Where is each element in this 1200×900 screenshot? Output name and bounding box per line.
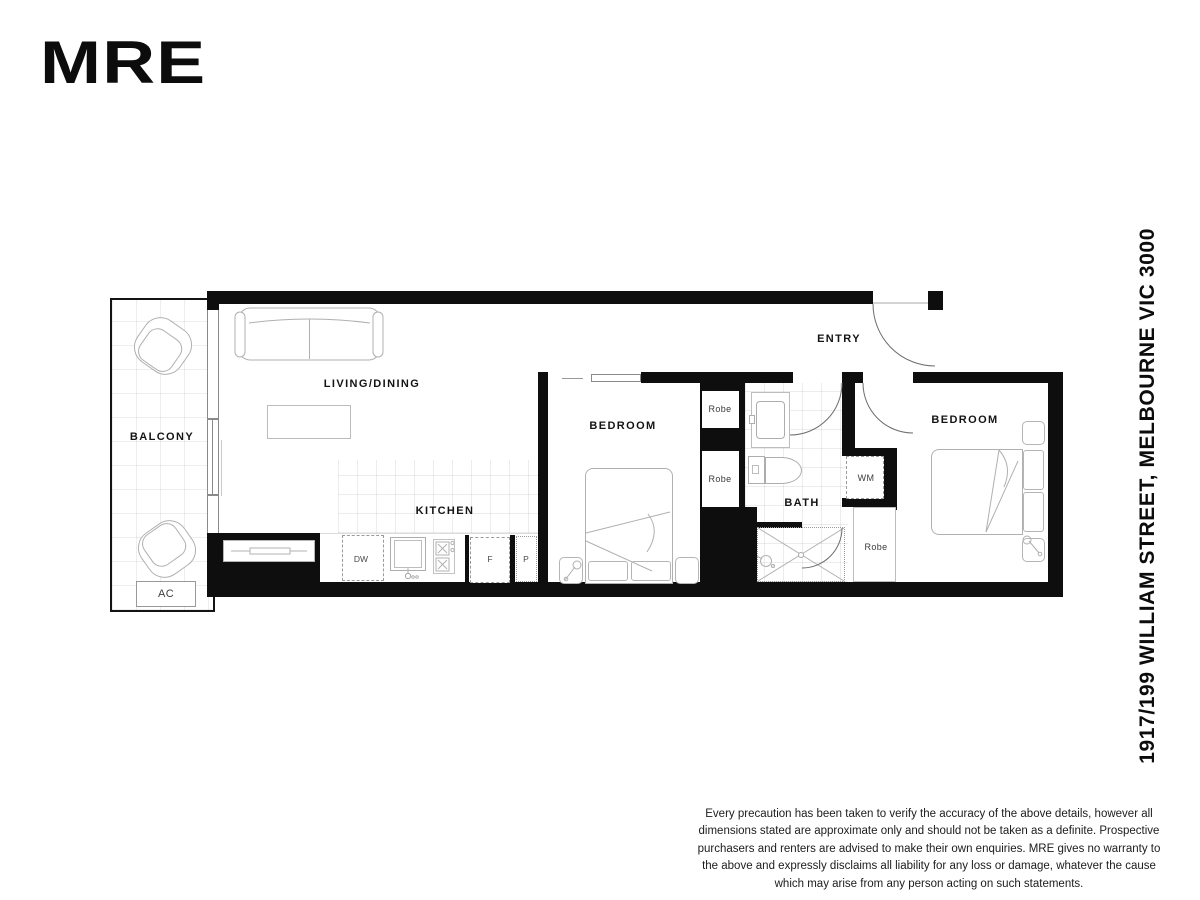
wall-top-end-cap bbox=[928, 291, 943, 310]
wall-entry-bath bbox=[842, 372, 855, 455]
curtain-line bbox=[221, 440, 222, 496]
room-label-bedroom-2: BEDROOM bbox=[931, 414, 998, 426]
fixture-label-robe-2: Robe bbox=[708, 474, 731, 484]
fixture-label-ac: AC bbox=[158, 588, 174, 600]
wall-right bbox=[1048, 372, 1063, 597]
kitchen-floor-grid bbox=[338, 460, 538, 533]
fixture-label-robe-1: Robe bbox=[708, 404, 731, 414]
bed1-nightstand-left bbox=[559, 557, 583, 584]
wall-top bbox=[207, 291, 873, 304]
wall-bedroom1-top bbox=[641, 372, 793, 383]
room-label-balcony: BALCONY bbox=[130, 431, 194, 443]
sofa-icon bbox=[235, 308, 383, 360]
fixture-label-wm: WM bbox=[858, 473, 875, 483]
fixture-label-pantry: P bbox=[523, 554, 529, 564]
bed2-icon bbox=[931, 449, 1023, 535]
bed2-pillow-top bbox=[1023, 450, 1044, 490]
room-label-bath: BATH bbox=[784, 497, 819, 509]
wall-kitchen-divider-1 bbox=[465, 535, 469, 582]
slider-track-line bbox=[562, 378, 583, 379]
bench-edge bbox=[320, 533, 538, 534]
wall-wm-bottom bbox=[842, 498, 897, 507]
floorplan: BALCONY LIVING/DINING KITCHEN BEDROOM BE… bbox=[0, 0, 1200, 900]
wall-top-left-cap bbox=[207, 291, 219, 310]
bed1-nightstand-right bbox=[675, 557, 699, 584]
room-label-living-dining: LIVING/DINING bbox=[324, 378, 420, 390]
sliding-door-panel bbox=[591, 374, 641, 382]
fixture-label-fridge: F bbox=[487, 554, 492, 564]
fixture-label-robe-3: Robe bbox=[864, 542, 887, 552]
room-label-bedroom-1: BEDROOM bbox=[589, 420, 656, 432]
cooktop-icon bbox=[433, 539, 455, 574]
bedroom2-door bbox=[863, 383, 913, 433]
kitchen-sink-basin bbox=[394, 540, 422, 568]
window-mullion bbox=[207, 418, 219, 420]
room-label-entry: ENTRY bbox=[817, 333, 861, 345]
bed2-pillow-bottom bbox=[1023, 492, 1044, 532]
vanity-tap bbox=[749, 415, 755, 424]
shower-icon bbox=[757, 527, 845, 582]
window-pane-line bbox=[212, 420, 213, 494]
coffee-table-icon bbox=[267, 405, 351, 439]
balcony-area bbox=[110, 298, 215, 612]
vanity-basin bbox=[756, 401, 785, 439]
bed2-nightstand-top bbox=[1022, 421, 1045, 445]
wall-kitchen-divider-2 bbox=[510, 535, 515, 582]
wall-bottom bbox=[207, 582, 1063, 597]
wall-bedroom2-door-stub bbox=[850, 372, 863, 383]
window-mullion bbox=[207, 494, 219, 496]
wall-bedroom2-top bbox=[913, 372, 1063, 383]
bed1-pillow-right bbox=[631, 561, 671, 581]
toilet-button bbox=[752, 465, 759, 474]
wall-kitchen-bedroom1 bbox=[538, 372, 548, 582]
fixture-label-dw: DW bbox=[354, 554, 368, 564]
bed2-nightstand-bottom bbox=[1022, 538, 1045, 562]
bed1-pillow-left bbox=[588, 561, 628, 581]
room-label-kitchen: KITCHEN bbox=[416, 505, 475, 517]
entry-door bbox=[873, 303, 935, 366]
wall-shower-left bbox=[745, 507, 757, 582]
tv-unit bbox=[223, 540, 315, 562]
